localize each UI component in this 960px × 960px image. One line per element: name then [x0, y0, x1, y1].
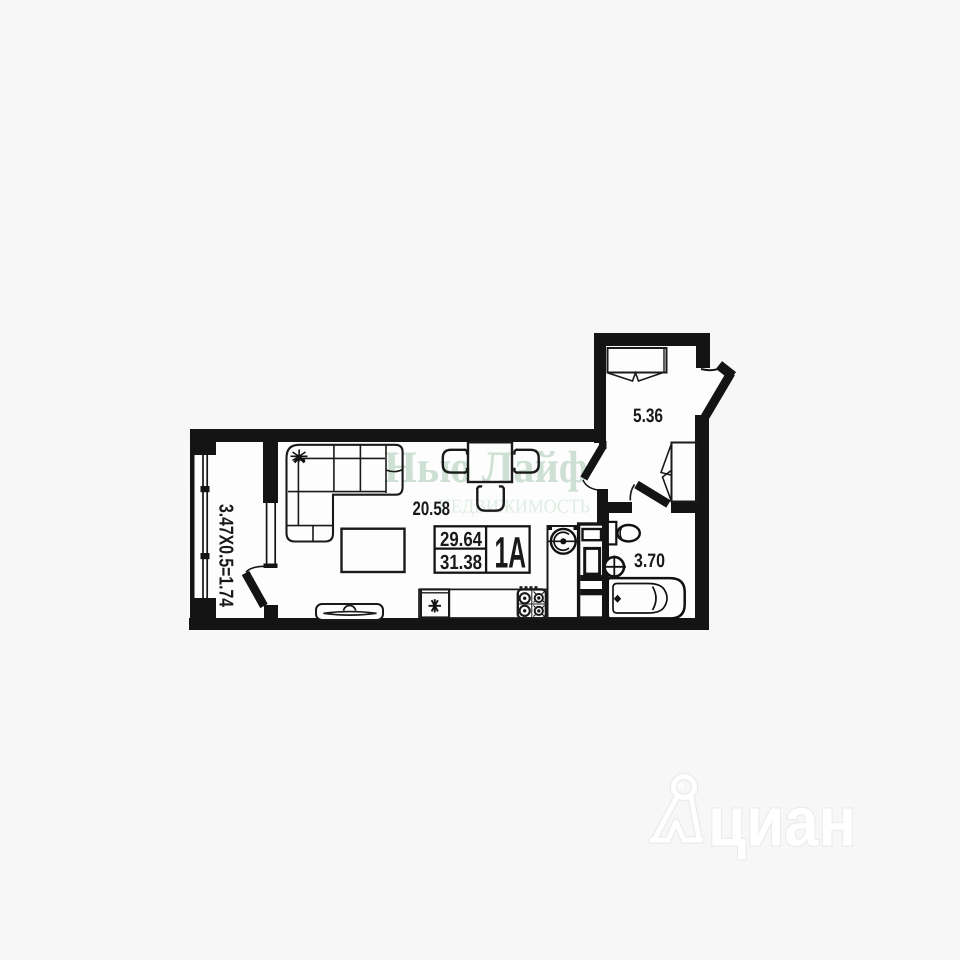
svg-text:3.47X0.5=1.74: 3.47X0.5=1.74 — [215, 504, 237, 608]
svg-text:Нью Лайф: Нью Лайф — [384, 442, 588, 492]
svg-text:31.38: 31.38 — [440, 551, 482, 574]
svg-text:29.64: 29.64 — [440, 528, 482, 551]
svg-text:5.36: 5.36 — [633, 405, 663, 427]
svg-text:20.58: 20.58 — [413, 498, 451, 520]
svg-text:циан: циан — [708, 783, 856, 861]
svg-text:3.70: 3.70 — [634, 550, 665, 572]
svg-text:НЕДВИЖИМОСТЬ: НЕДВИЖИМОСТЬ — [438, 497, 590, 518]
svg-text:1А: 1А — [495, 529, 527, 578]
